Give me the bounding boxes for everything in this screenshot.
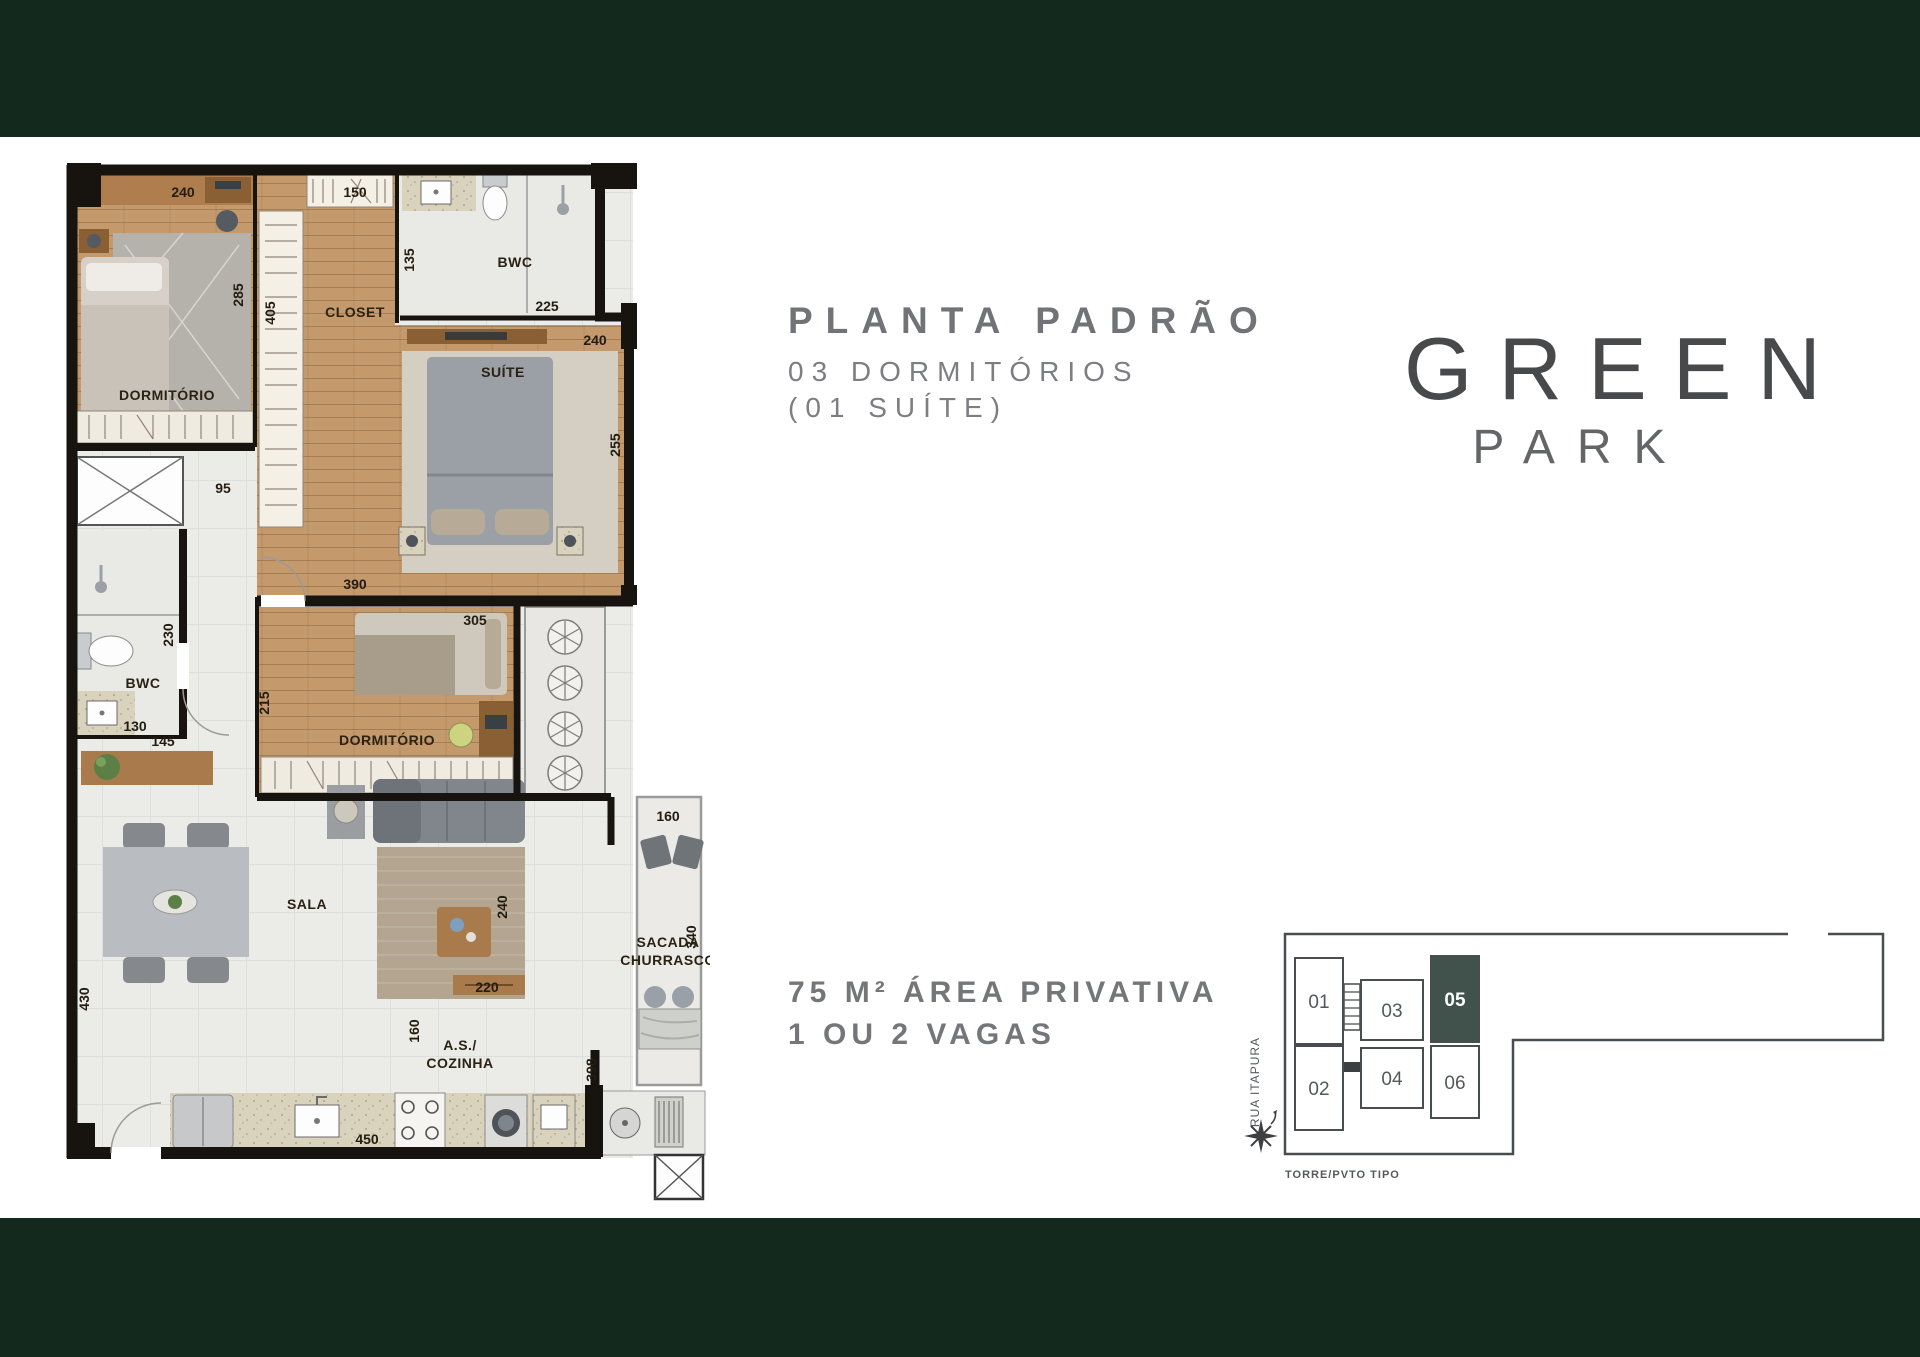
service-shaft — [77, 457, 183, 525]
keyplan-elevator — [1344, 1062, 1360, 1072]
key-plan: 010203040506 RUA ITAPURATORRE/PVTO TIPO — [1243, 922, 1903, 1188]
page-title: PLANTA PADRÃO — [788, 300, 1271, 342]
logo-green: GREEN — [1404, 318, 1760, 420]
dimension-label: 430 — [76, 987, 92, 1011]
dimension-label: 390 — [343, 576, 367, 592]
dimension-label: 95 — [215, 480, 231, 496]
keyplan-unit-number: 02 — [1308, 1079, 1329, 1100]
keyplan-unit-05: 05 — [1431, 956, 1479, 1042]
dimension-label: 145 — [151, 733, 175, 749]
dimension-label: 215 — [256, 691, 272, 715]
dimension-label: 305 — [463, 612, 487, 628]
keyplan-top-gap — [1788, 928, 1828, 940]
key-plan-drawing: 010203040506 RUA ITAPURATORRE/PVTO TIPO — [1243, 922, 1903, 1188]
dimension-label: 240 — [583, 332, 607, 348]
top-brand-band — [0, 0, 1920, 137]
subtitle-suite: (01 SUÍTE) — [788, 392, 1271, 424]
room-label: BWC — [498, 254, 533, 270]
keyplan-unit-01: 01 — [1295, 958, 1343, 1044]
kitchen-laundry — [170, 1091, 705, 1199]
dimension-label: 225 — [535, 298, 559, 314]
floor-plan-drawing: 240285DORMITÓRIO150405CLOSET135BWC225240… — [55, 145, 710, 1205]
room-label: DORMITÓRIO — [119, 386, 215, 403]
keyplan-unit-06: 06 — [1431, 1046, 1479, 1118]
room-label: DORMITÓRIO — [339, 731, 435, 748]
sideboard — [81, 751, 213, 785]
logo-park: PARK — [1400, 420, 1760, 475]
subtitle-dormitorios: 03 DORMITÓRIOS — [788, 356, 1271, 388]
keyplan-unit-number: 04 — [1381, 1069, 1403, 1090]
floor-plan: 240285DORMITÓRIO150405CLOSET135BWC225240… — [55, 145, 710, 1205]
room-label: CLOSET — [325, 304, 385, 320]
room-label: BWC — [126, 675, 161, 691]
street-label: RUA ITAPURA — [1248, 1037, 1262, 1127]
dimension-label: 398 — [583, 1058, 599, 1082]
area-block: 75 M² ÁREA PRIVATIVA 1 OU 2 VAGAS — [788, 976, 1219, 1052]
ac-condenser-shaft — [525, 607, 605, 795]
dimension-label: 450 — [355, 1131, 379, 1147]
keyplan-unit-02: 02 — [1295, 1046, 1343, 1130]
keyplan-unit-number: 06 — [1444, 1073, 1465, 1094]
bottom-brand-band — [0, 1218, 1920, 1357]
room-label: COZINHA — [426, 1055, 493, 1071]
shower-head-icon — [95, 581, 107, 593]
title-block: PLANTA PADRÃO 03 DORMITÓRIOS (01 SUÍTE) — [788, 300, 1271, 424]
room-label: SALA — [287, 896, 327, 912]
dimension-label: 135 — [401, 248, 417, 272]
dimension-label: 160 — [656, 808, 680, 824]
keyplan-caption: TORRE/PVTO TIPO — [1285, 1169, 1400, 1181]
dimension-label: 255 — [607, 433, 623, 457]
dimension-label: 240 — [171, 184, 195, 200]
parking-text: 1 OU 2 VAGAS — [788, 1018, 1219, 1052]
dimension-label: 285 — [230, 283, 246, 307]
keyplan-unit-number: 05 — [1444, 990, 1466, 1011]
dimension-label: 220 — [475, 979, 499, 995]
keyplan-unit-04: 04 — [1361, 1048, 1423, 1108]
dimension-label: 150 — [343, 184, 367, 200]
brand-logo: GREEN PARK — [1378, 318, 1760, 475]
room-label: A.S./ — [443, 1037, 477, 1053]
room-label: CHURRASCO — [620, 952, 710, 968]
dimension-label: 230 — [160, 623, 176, 647]
bathroom-top — [400, 173, 595, 320]
dimension-label: 240 — [494, 895, 510, 919]
shower-head-icon — [557, 203, 569, 215]
keyplan-unit-number: 03 — [1381, 1001, 1402, 1022]
dimension-label: 160 — [406, 1019, 422, 1043]
dimension-label: 130 — [123, 718, 147, 734]
keyplan-unit-number: 01 — [1308, 992, 1329, 1013]
dimension-label: 405 — [262, 301, 278, 325]
private-area-text: 75 M² ÁREA PRIVATIVA — [788, 976, 1219, 1010]
keyplan-unit-03: 03 — [1361, 980, 1423, 1040]
room-label: SUÍTE — [481, 364, 525, 380]
room-label: SACADA — [637, 934, 700, 950]
